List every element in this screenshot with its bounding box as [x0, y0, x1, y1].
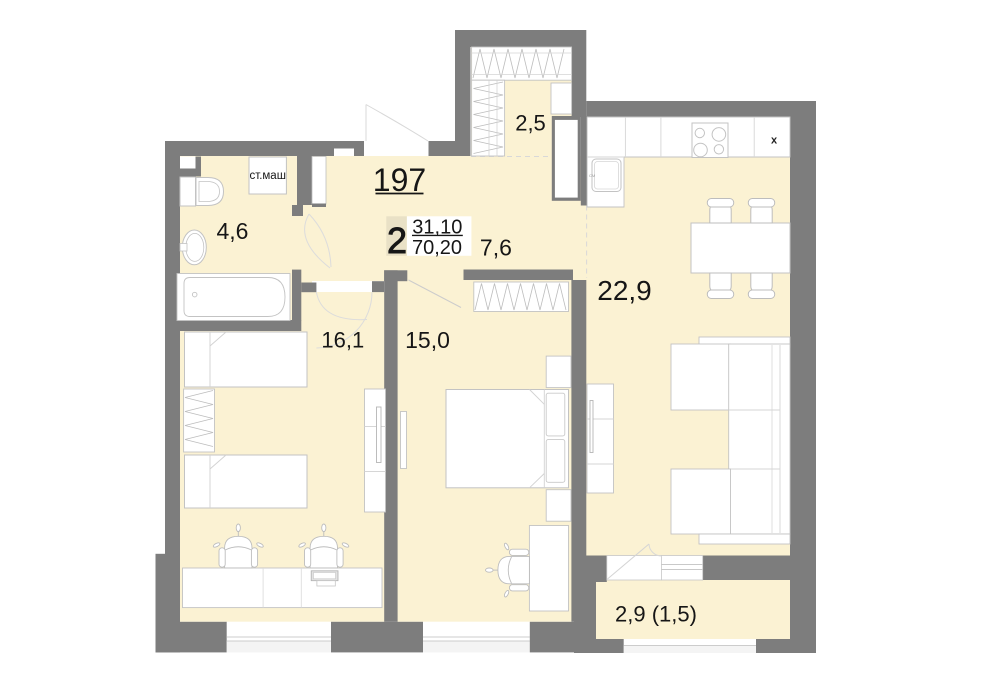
svg-text:CM: CM — [589, 173, 595, 178]
svg-text:7,6: 7,6 — [480, 235, 512, 261]
svg-text:2,5: 2,5 — [515, 110, 546, 135]
svg-text:2,9 (1,5): 2,9 (1,5) — [615, 602, 697, 627]
svg-text:16,1: 16,1 — [321, 328, 364, 353]
svg-text:15,0: 15,0 — [405, 327, 450, 353]
svg-text:70,20: 70,20 — [412, 237, 462, 259]
svg-text:2: 2 — [387, 220, 407, 261]
svg-text:ст.маш: ст.маш — [249, 170, 285, 182]
svg-text:22,9: 22,9 — [597, 275, 652, 306]
svg-text:4,6: 4,6 — [217, 218, 249, 244]
svg-text:x: x — [771, 135, 778, 147]
